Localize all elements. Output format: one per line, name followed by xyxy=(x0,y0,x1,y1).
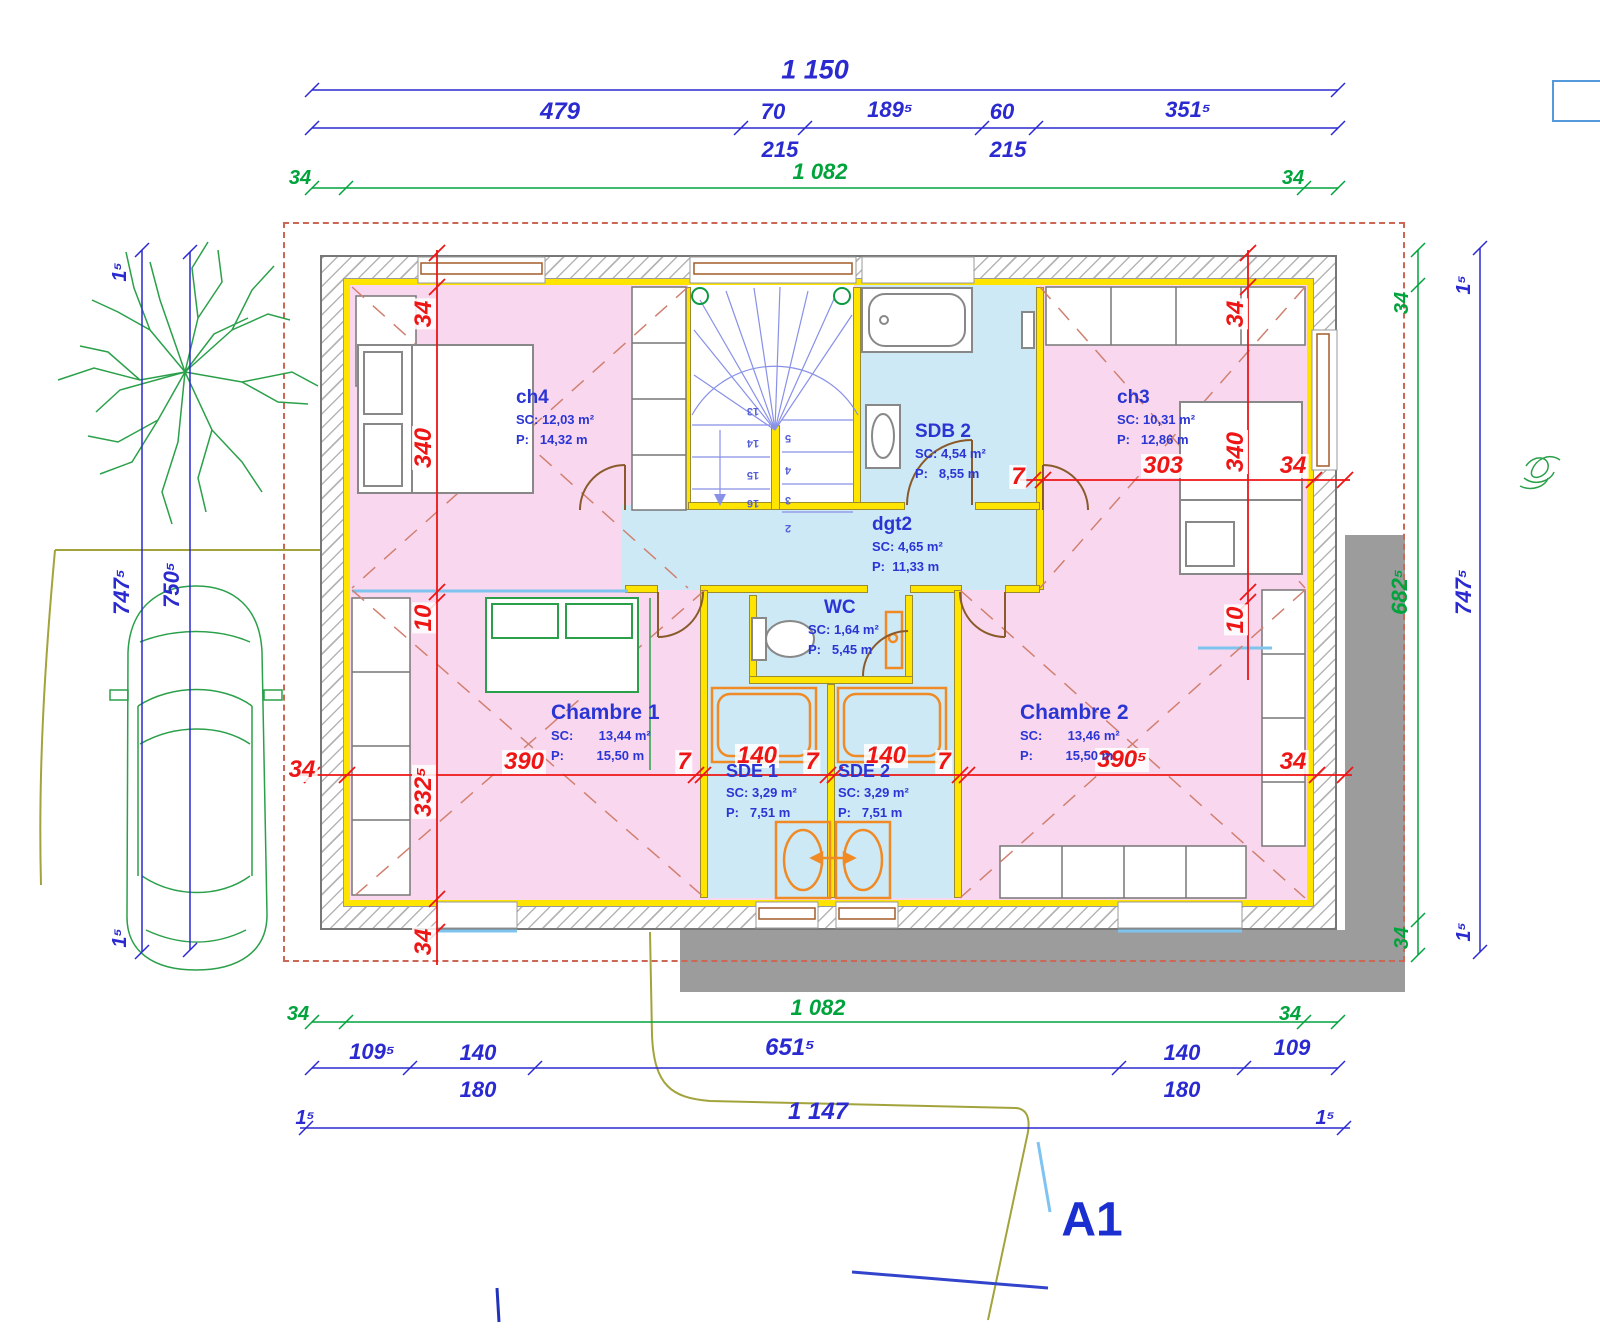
dim-red-left-5: 34 xyxy=(412,927,436,958)
dim-green-bot-1: 34 xyxy=(287,1004,309,1024)
dim-bot-4: 140 xyxy=(1164,1042,1201,1064)
dim-top-total: 1 150 xyxy=(781,57,849,84)
room-p-dgt2: P: 11,33 m xyxy=(872,557,943,577)
dim-right-green-3: 34 xyxy=(1392,927,1412,949)
room-p-sde2: P: 7,51 m xyxy=(838,803,909,823)
stair-num: 2 xyxy=(785,522,791,534)
room-name-dgt2: dgt2 xyxy=(872,513,943,537)
dim-red-mid-5: 7 xyxy=(803,750,820,774)
dim-right-blue-2: 747⁵ xyxy=(1453,569,1475,615)
dim-right-green-2: 682⁵ xyxy=(1389,569,1411,615)
dim-top-sub-1: 215 xyxy=(762,139,799,161)
dim-bot-5: 109 xyxy=(1274,1037,1311,1059)
dim-red-upper-3: 34 xyxy=(1278,454,1309,478)
room-sc-sde2: SC: 3,29 m² xyxy=(838,783,909,803)
dim-bot-total-1: 1⁵ xyxy=(295,1108,314,1128)
dim-red-mid-1: 34 xyxy=(287,758,318,782)
stair-num: 3 xyxy=(785,494,791,506)
room-sc-chambre2: SC: 13,46 m² xyxy=(1020,726,1129,746)
dim-bot-3: 651⁵ xyxy=(765,1036,815,1060)
dim-bot-1: 109⁵ xyxy=(349,1041,395,1063)
dim-left-blue-3: 750⁵ xyxy=(161,562,183,608)
dim-green-bot-3: 34 xyxy=(1279,1004,1301,1024)
dim-top-seg-1: 479 xyxy=(540,100,580,124)
room-label-chambre2: Chambre 2 SC: 13,46 m² P: 15,50 m xyxy=(1020,700,1129,767)
a1-annotation-lines xyxy=(497,1142,1050,1322)
bush-right xyxy=(1520,457,1560,489)
room-p-ch4: P: 14,32 m xyxy=(516,430,594,450)
dim-red-upper-2: 303 xyxy=(1141,454,1185,478)
dim-top-seg-4: 60 xyxy=(990,101,1014,123)
dim-top-seg-5: 351⁵ xyxy=(1165,99,1211,121)
dim-bot-2: 140 xyxy=(460,1042,497,1064)
floor-plan-sheet: 1 150 479 70 189⁵ 60 351⁵ 215 215 34 1 0… xyxy=(0,0,1600,1333)
dim-red-mid-3: 7 xyxy=(675,750,692,774)
dim-red-right-1: 34 xyxy=(1224,299,1248,330)
room-name-ch3: ch3 xyxy=(1117,386,1195,410)
stair-num: 4 xyxy=(785,464,791,476)
dim-red-right-3: 10 xyxy=(1224,605,1248,636)
dim-green-top-1: 34 xyxy=(289,168,311,188)
plan-linework xyxy=(0,0,1600,1333)
car xyxy=(110,586,282,970)
dim-red-mid-7: 7 xyxy=(935,750,952,774)
bed-ch4 xyxy=(358,345,533,493)
room-label-sde1: SDE 1 SC: 3,29 m² P: 7,51 m xyxy=(726,760,797,823)
room-sc-sde1: SC: 3,29 m² xyxy=(726,783,797,803)
dim-top-seg-2: 70 xyxy=(761,101,785,123)
dim-bot-total-3: 1⁵ xyxy=(1315,1108,1334,1128)
dim-right-blue-3: 1⁵ xyxy=(1454,922,1474,941)
room-name-sde2: SDE 2 xyxy=(838,760,909,783)
dim-red-mid-2: 390 xyxy=(502,750,546,774)
room-name-wc: WC xyxy=(808,596,879,620)
dim-left-blue-2: 747⁵ xyxy=(111,569,133,615)
room-name-sde1: SDE 1 xyxy=(726,760,797,783)
room-name-chambre2: Chambre 2 xyxy=(1020,700,1129,726)
dim-red-left-3: 10 xyxy=(412,603,436,634)
room-name-sdb2: SDB 2 xyxy=(915,420,986,444)
dim-green-top-2: 1 082 xyxy=(792,161,847,183)
room-label-dgt2: dgt2 SC: 4,65 m² P: 11,33 m xyxy=(872,513,943,577)
room-sc-wc: SC: 1,64 m² xyxy=(808,620,879,640)
stair-num: 14 xyxy=(747,437,759,449)
stair-num: 5 xyxy=(785,432,791,444)
dim-top-seg-3: 189⁵ xyxy=(867,99,913,121)
dim-red-upper-1: 7 xyxy=(1009,465,1026,489)
room-p-chambre1: P: 15,50 m xyxy=(551,746,660,766)
dim-red-left-1: 34 xyxy=(412,299,436,330)
room-label-wc: WC SC: 1,64 m² P: 5,45 m xyxy=(808,596,879,660)
stair-num: 13 xyxy=(747,405,759,417)
staircase xyxy=(692,287,858,512)
tree xyxy=(58,242,318,524)
room-p-sde1: P: 7,51 m xyxy=(726,803,797,823)
room-sc-sdb2: SC: 4,54 m² xyxy=(915,444,986,464)
dim-bot-total-2: 1 147 xyxy=(788,1100,848,1124)
bathtub-sdb2 xyxy=(862,288,972,352)
dim-right-green-1: 34 xyxy=(1392,292,1412,314)
dim-left-blue-1: 1⁵ xyxy=(110,262,130,281)
stair-num: 16 xyxy=(747,497,759,509)
stair-num: 15 xyxy=(747,469,759,481)
room-sc-chambre1: SC: 13,44 m² xyxy=(551,726,660,746)
room-label-ch4: ch4 SC: 12,03 m² P: 14,32 m xyxy=(516,386,594,450)
bed-ch3 xyxy=(1180,402,1302,574)
dim-green-bot-2: 1 082 xyxy=(790,997,845,1019)
dim-bot-sub-2: 180 xyxy=(1164,1079,1201,1101)
dim-left-blue-4: 1⁵ xyxy=(110,928,130,947)
room-p-sdb2: P: 8,55 m xyxy=(915,464,986,484)
sheet-corner-box xyxy=(1552,80,1600,122)
room-label-chambre1: Chambre 1 SC: 13,44 m² P: 15,50 m xyxy=(551,700,660,767)
toilet-wc xyxy=(752,618,814,660)
drawing-title: A1 xyxy=(1061,1193,1122,1248)
room-sc-ch4: SC: 12,03 m² xyxy=(516,410,594,430)
room-label-ch3: ch3 SC: 10,31 m² P: 12,86 m xyxy=(1117,386,1195,450)
room-name-chambre1: Chambre 1 xyxy=(551,700,660,726)
room-p-wc: P: 5,45 m xyxy=(808,640,879,660)
dim-green-top-3: 34 xyxy=(1282,168,1304,188)
room-label-sdb2: SDB 2 SC: 4,54 m² P: 8,55 m xyxy=(915,420,986,484)
dim-red-mid-9: 34 xyxy=(1278,750,1309,774)
dim-bot-sub-1: 180 xyxy=(460,1079,497,1101)
dim-red-right-2: 340 xyxy=(1224,430,1248,474)
room-name-ch4: ch4 xyxy=(516,386,594,410)
dim-right-blue-1: 1⁵ xyxy=(1454,275,1474,294)
room-sc-ch3: SC: 10,31 m² xyxy=(1117,410,1195,430)
dim-red-left-2: 340 xyxy=(412,426,436,470)
room-sc-dgt2: SC: 4,65 m² xyxy=(872,537,943,557)
dim-top-sub-2: 215 xyxy=(990,139,1027,161)
room-p-ch3: P: 12,86 m xyxy=(1117,430,1195,450)
room-label-sde2: SDE 2 SC: 3,29 m² P: 7,51 m xyxy=(838,760,909,823)
room-p-chambre2: P: 15,50 m xyxy=(1020,746,1129,766)
dim-red-left-4: 332⁵ xyxy=(412,765,436,819)
